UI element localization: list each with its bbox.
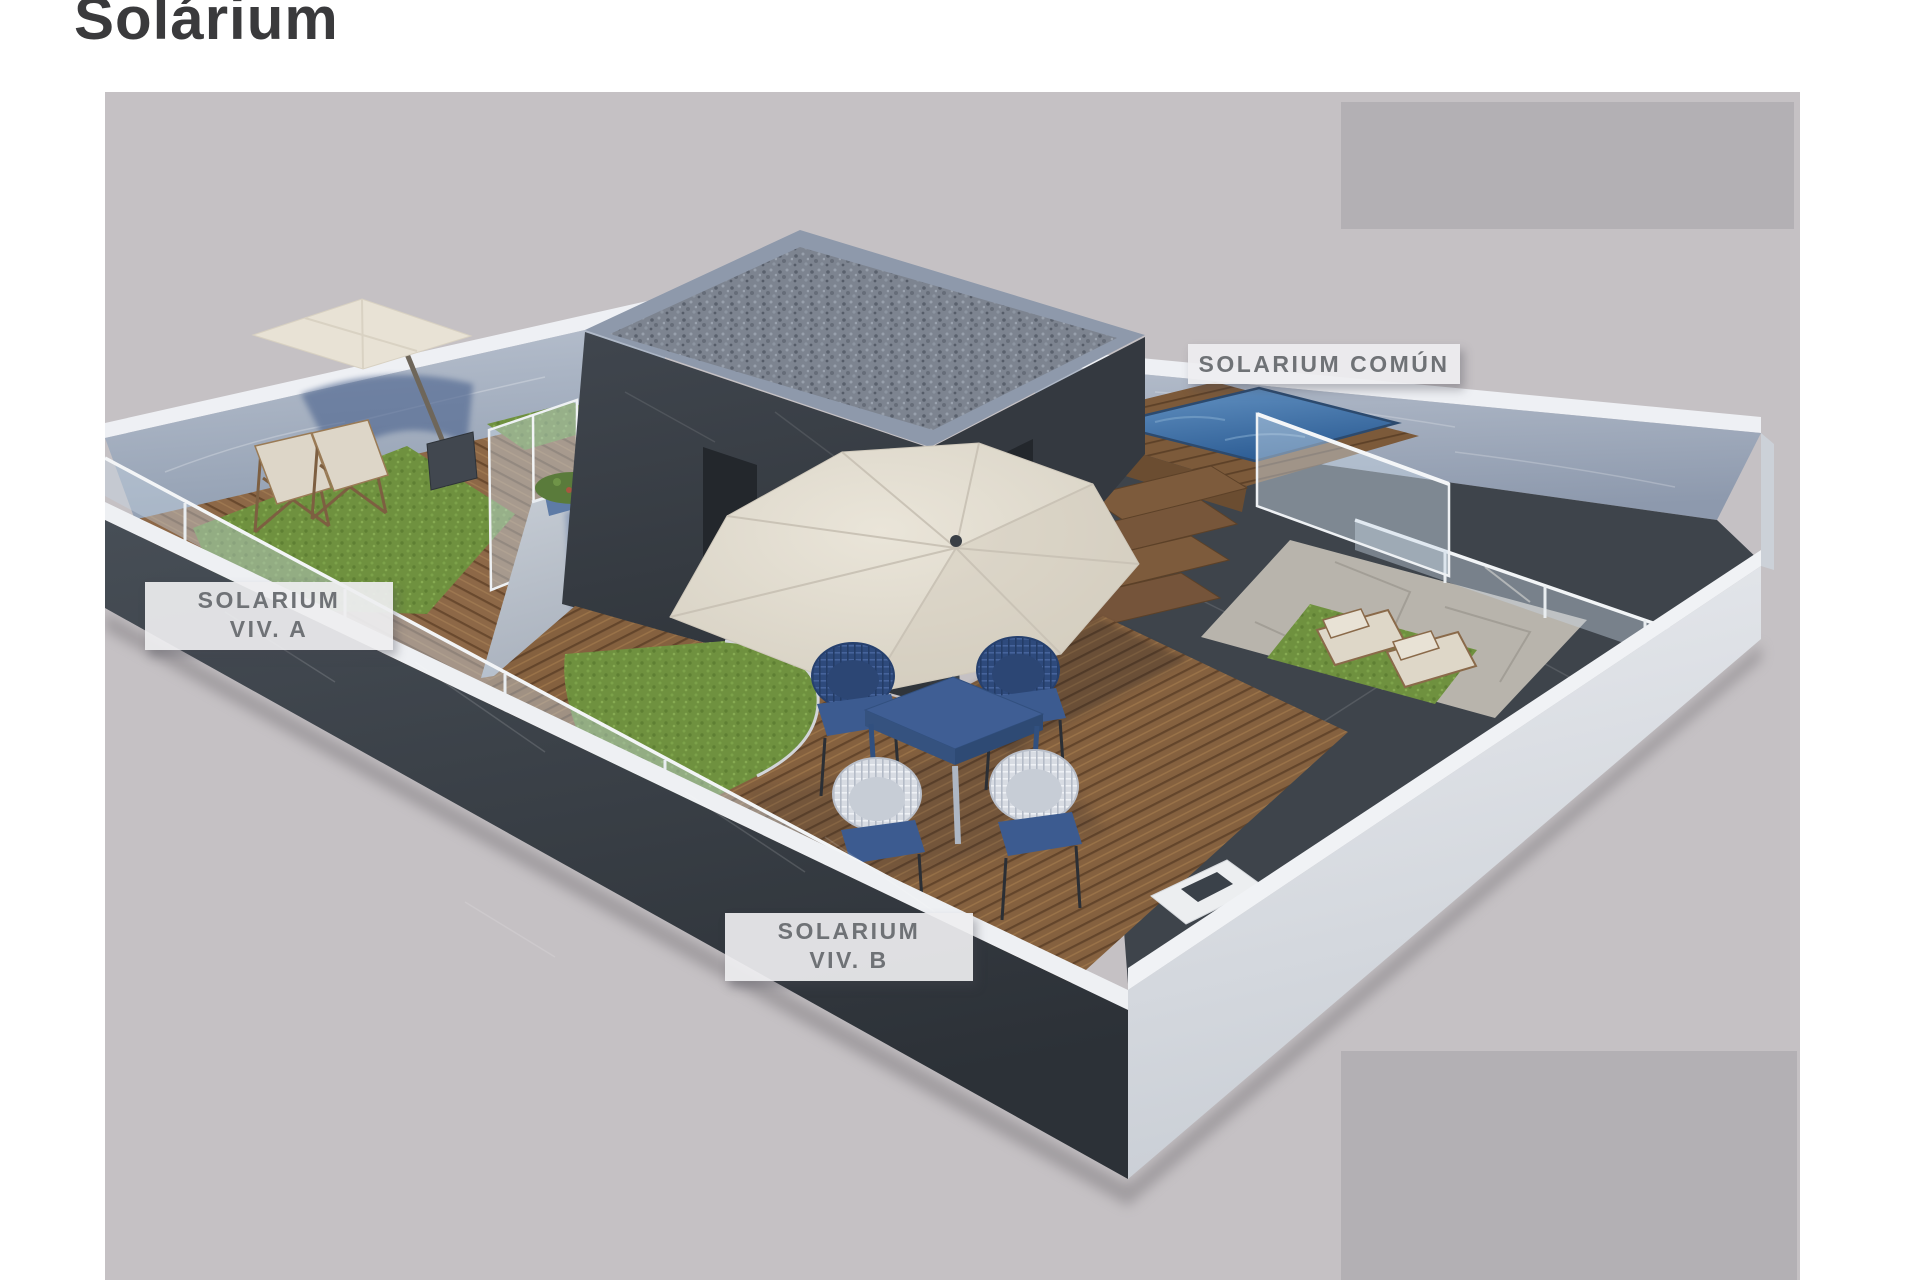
masked-region-bottom-right [1341,1051,1797,1280]
umbrella-finial [950,535,962,547]
label-viv-a-line2: VIV. A [145,615,393,644]
page: { "page": { "title": "Solárium" }, "rend… [0,0,1920,1280]
label-solarium-viv-a: SOLARIUM VIV. A [145,582,393,650]
label-viv-b-line2: VIV. B [725,946,973,975]
label-viv-a-line1: SOLARIUM [145,586,393,615]
label-solarium-viv-b: SOLARIUM VIV. B [725,913,973,981]
label-solarium-comun: SOLARIUM COMÚN [1188,344,1460,384]
label-viv-b-line1: SOLARIUM [725,917,973,946]
page-title: Solárium [74,0,339,53]
masked-region-top-right [1341,102,1794,229]
render-canvas: SOLARIUM COMÚN SOLARIUM VIV. A SOLARIUM … [105,92,1800,1280]
east-corner-edge [1761,433,1774,570]
